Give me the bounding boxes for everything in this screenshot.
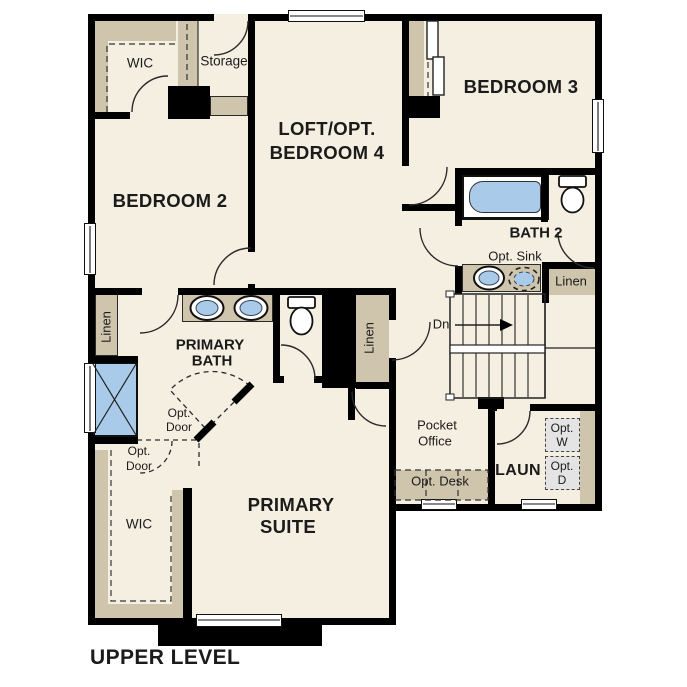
bedroom3-label: BEDROOM 3 — [464, 78, 579, 97]
opt-door-bath-line1: Opt. — [168, 407, 191, 419]
storage-label: Storage — [200, 54, 247, 68]
wall-bath2-linen-top — [549, 262, 602, 269]
window-shower-left — [84, 363, 96, 433]
wall-hall-top — [402, 204, 462, 211]
opt-door-wic-line2: Door — [126, 460, 152, 472]
opt-dryer-line2: D — [558, 474, 567, 486]
wall-wc-bottom-a — [273, 376, 284, 383]
bath2-label: BATH 2 — [509, 226, 562, 241]
window-bedroom2-left — [84, 223, 96, 275]
laundry-label: LAUN — [495, 463, 541, 479]
wall-wc-bottom-b — [314, 376, 324, 383]
wall-laundry-left — [488, 404, 495, 504]
wall-wc-left — [273, 294, 280, 383]
opt-door-bath-line2: Door — [166, 421, 192, 433]
wall-chase-block — [322, 288, 356, 388]
opt-sink-label: Opt. Sink — [488, 250, 541, 263]
window-loft-top — [288, 10, 365, 22]
window-laundry — [521, 499, 557, 510]
wall-shower-bottom — [88, 437, 138, 444]
bathtub — [469, 181, 541, 213]
bedroom2-label: BEDROOM 2 — [113, 192, 228, 211]
wall-loft-bedroom3-b — [402, 118, 409, 166]
wic-upper-shelf-left — [95, 21, 108, 112]
opt-dryer-line1: Opt. — [551, 460, 574, 472]
primary-bath-vanity — [182, 294, 273, 322]
primary-suite-label-line1: PRIMARY — [248, 496, 335, 515]
shower — [91, 362, 138, 437]
opt-washer-line2: W — [556, 436, 567, 448]
pocket-office-label-line2: Office — [418, 435, 452, 448]
wall-primary-bath-top-b — [178, 288, 324, 295]
loft-label-line2: BEDROOM 4 — [270, 144, 385, 163]
wall-linen-hall-top — [356, 288, 389, 295]
floor-plan: WIC Storage BEDROOM 2 LOFT/OPT. BEDROOM … — [0, 0, 687, 687]
bath2-linen-label: Linen — [555, 275, 587, 288]
wall-bath2-top — [455, 168, 602, 175]
plan-title: UPPER LEVEL — [90, 647, 240, 668]
wall-bath2-left-a — [455, 168, 462, 226]
opt-desk-label: Opt. Desk — [411, 475, 469, 488]
wall-block-stairs-bottom — [478, 397, 504, 409]
window-primary-suite — [196, 614, 282, 627]
wall-bedroom2-right — [248, 14, 255, 252]
wic-upper-label: WIC — [127, 56, 153, 70]
bedroom3-closet-shelf — [409, 21, 424, 97]
bath2-vanity — [462, 264, 541, 292]
wall-bath2-linen-left — [542, 262, 549, 303]
window-bedroom3-right — [592, 99, 604, 153]
opt-door-wic-line1: Opt. — [128, 445, 151, 457]
wall-suite-right-upper — [389, 288, 396, 320]
pocket-office-label-line1: Pocket — [417, 419, 457, 432]
storage-shelf — [210, 96, 248, 116]
loft-label-line1: LOFT/OPT. — [278, 120, 375, 139]
primary-suite-label-line2: SUITE — [260, 518, 316, 537]
wall-linen-hall-bottom — [356, 382, 389, 389]
opt-washer-line1: Opt. — [551, 422, 574, 434]
stairs-dn-label: Dn — [433, 318, 450, 331]
hall-linen-label: Linen — [363, 322, 376, 354]
wall-shower-top — [88, 356, 138, 363]
storage-door-opening — [214, 14, 248, 21]
hall-chase-strip — [178, 21, 198, 86]
wall-primary-bath-top-a — [88, 288, 142, 295]
primary-bath-label-line1: PRIMARY — [176, 338, 245, 353]
wall-loft-bedroom3-a — [402, 14, 409, 98]
primary-bath-label-line2: BATH — [192, 354, 233, 369]
wic-lower-shelf-left — [95, 450, 108, 618]
wall-wic-upper-bottom — [88, 112, 130, 119]
wall-tub-right — [541, 168, 548, 222]
wall-laundry-top-b — [530, 404, 602, 411]
laundry-side-cabinet — [580, 411, 595, 504]
wic-lower-shelf-right — [172, 490, 183, 618]
primary-linen-label: Linen — [100, 311, 113, 343]
wic-lower-label: WIC — [126, 517, 152, 531]
wall-suite-right-lower — [389, 358, 396, 618]
wall-suite-entry-stub — [348, 384, 355, 420]
wall-block-bedroom3 — [402, 96, 440, 118]
wall-block-wic-storage — [168, 86, 210, 119]
wall-bath2-left-b — [455, 266, 462, 294]
window-pocket-office — [421, 499, 457, 510]
wall-exterior-left — [88, 14, 95, 625]
wall-wic-lower-right — [183, 488, 192, 625]
